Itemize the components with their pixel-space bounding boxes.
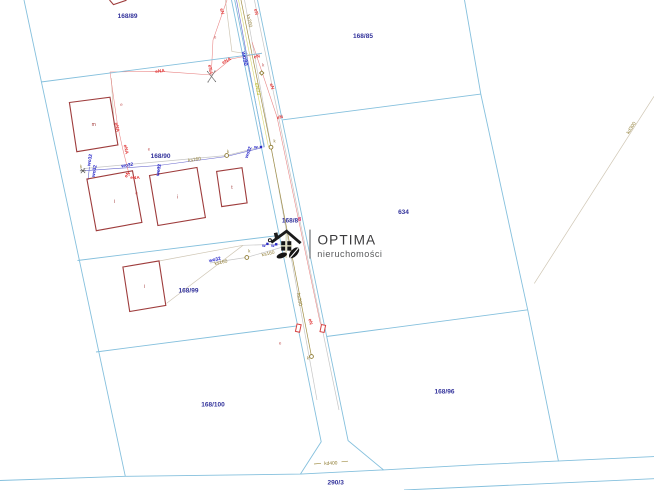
svg-text:kd400: kd400 xyxy=(324,460,338,466)
svg-text:168/99: 168/99 xyxy=(179,287,199,294)
svg-text:168/85: 168/85 xyxy=(353,33,373,40)
svg-text:w: w xyxy=(261,243,266,248)
svg-text:168/100: 168/100 xyxy=(201,402,225,409)
svg-text:168/89: 168/89 xyxy=(118,13,138,20)
svg-text:nieruchomości: nieruchomości xyxy=(317,249,382,259)
svg-text:i: i xyxy=(114,199,115,205)
svg-text:168/96: 168/96 xyxy=(435,388,455,395)
svg-text:eNA: eNA xyxy=(130,175,140,181)
svg-text:m: m xyxy=(92,122,96,128)
svg-text:OPTIMA: OPTIMA xyxy=(318,233,377,248)
svg-text:168/90: 168/90 xyxy=(151,153,171,160)
svg-text:290/3: 290/3 xyxy=(328,479,345,486)
svg-text:w: w xyxy=(270,243,275,248)
svg-text:eNA: eNA xyxy=(155,68,166,75)
svg-text:634: 634 xyxy=(398,209,409,216)
svg-text:i: i xyxy=(144,284,145,290)
svg-text:w: w xyxy=(253,145,258,150)
svg-text:8: 8 xyxy=(298,217,301,223)
svg-text:i: i xyxy=(177,195,178,201)
svg-text:168/8: 168/8 xyxy=(282,217,299,224)
